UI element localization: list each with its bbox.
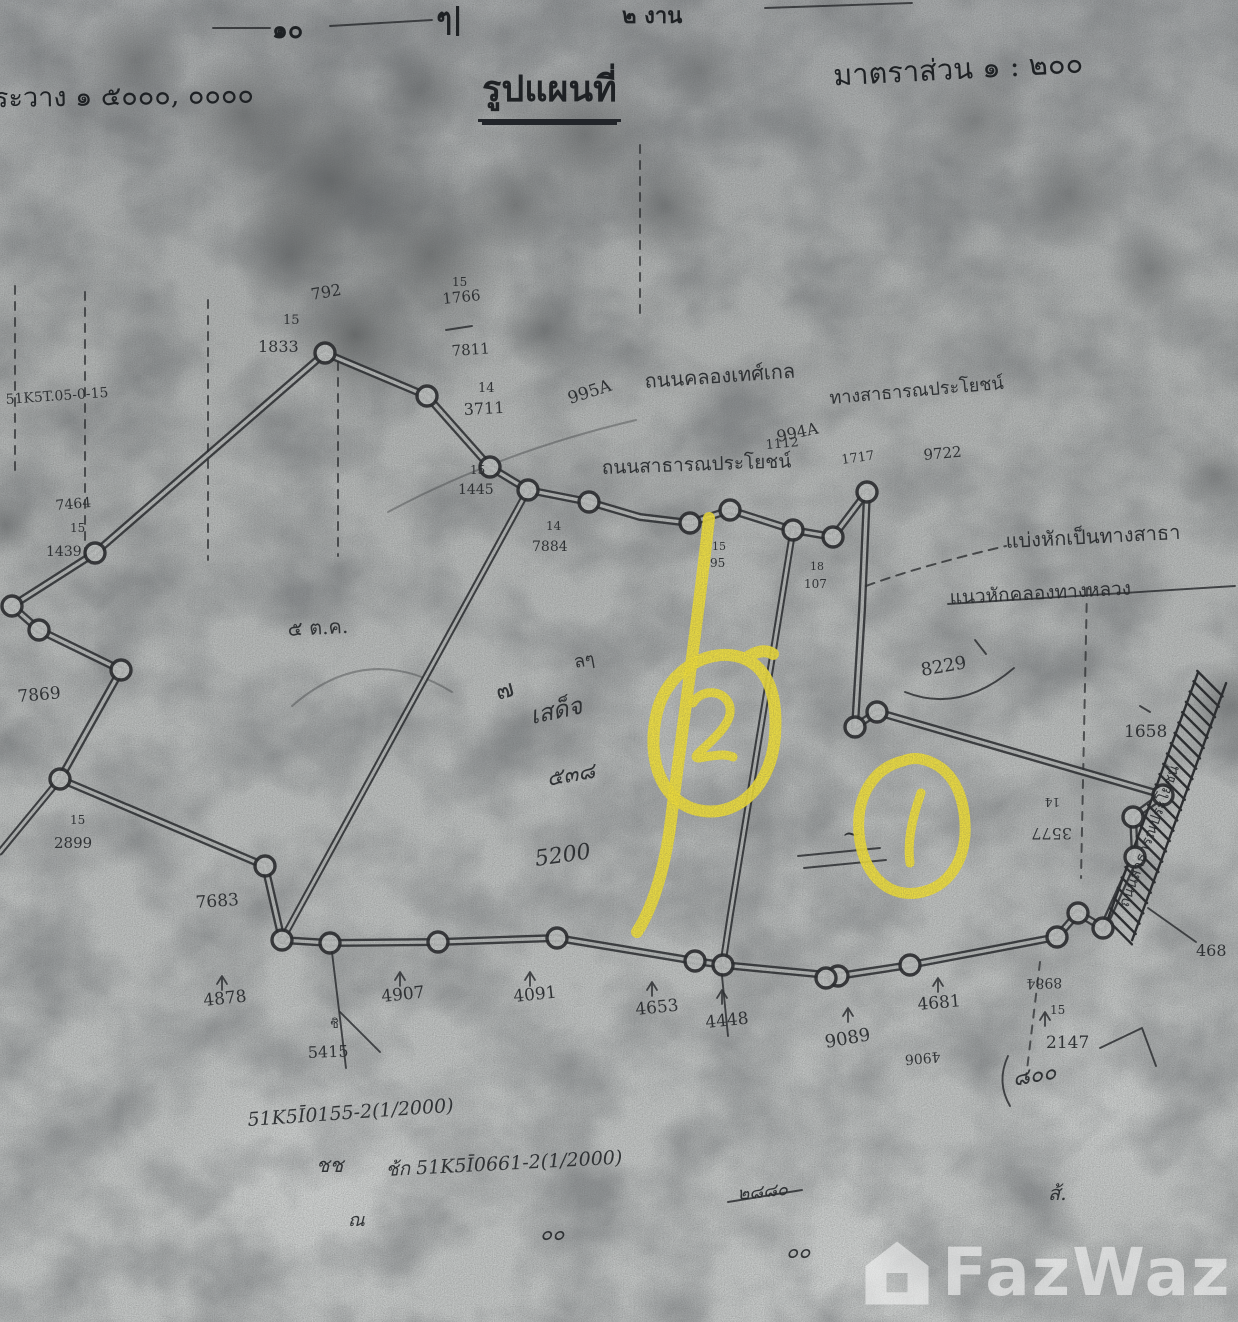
map-label: 9722 <box>923 443 963 464</box>
map-label: ลๆ <box>572 649 596 673</box>
pen-line <box>330 20 432 26</box>
map-label: ถนนสาธารณประโยชน์ <box>601 449 791 479</box>
highlighter-annotation <box>637 518 709 932</box>
survey-vertex <box>272 930 292 950</box>
map-label: ทางสาธารณประโยชน์ <box>829 372 1005 409</box>
parcel-boundary-inner <box>0 779 60 852</box>
survey-tick-mark <box>647 982 657 996</box>
survey-vertex <box>720 500 740 520</box>
road-hatch-tick <box>1193 681 1218 706</box>
survey-vertex <box>428 932 448 952</box>
map-label: แนวหักคลองทางหลวง <box>949 578 1131 609</box>
map-label: 14 <box>546 519 562 533</box>
road-hatch-tick <box>1171 743 1196 768</box>
map-label: ช้ก 51K5Ī0661-2(1/2000) <box>385 1146 623 1181</box>
map-label: 4448 <box>704 1009 749 1033</box>
pen-line <box>446 326 472 330</box>
pen-line <box>1148 908 1196 942</box>
map-label: 51K5Ī0155-2(1/2000) <box>247 1094 455 1131</box>
map-label: 15 <box>1050 1003 1065 1017</box>
survey-vertex <box>1093 918 1113 938</box>
survey-vertex <box>1047 927 1067 947</box>
map-label: 5415 <box>307 1042 348 1062</box>
map-label: 18 <box>810 560 824 573</box>
map-label: 1445 <box>458 482 494 498</box>
survey-tick-mark <box>843 1008 853 1022</box>
map-label: เสด็จ <box>527 690 585 729</box>
map-label: 4653 <box>634 996 679 1020</box>
map-label: 15 <box>283 313 300 328</box>
survey-vertex <box>29 620 49 640</box>
survey-sheet-label: ระวาง ๑ ๕๐๐๐, ๐๐๐๐ <box>0 72 254 120</box>
road-hatch-tick <box>1197 671 1222 696</box>
map-label: ๕๓๘ <box>545 758 600 792</box>
survey-vertex <box>579 492 599 512</box>
road-hatch-tick <box>1190 692 1215 717</box>
map-label: 8984 <box>1026 974 1062 991</box>
survey-vertex <box>255 856 275 876</box>
survey-vertex <box>713 955 733 975</box>
map-label: ชิ <box>330 1017 339 1032</box>
map-label: ๗ <box>492 674 517 706</box>
map-label: 4878 <box>202 987 247 1011</box>
map-label: 1439 <box>46 544 82 560</box>
map-label: 7464 <box>55 495 92 514</box>
map-label: 792 <box>309 280 342 304</box>
map-label: 3577 <box>1031 824 1072 843</box>
map-label: ถนนคลองเทศ์เกล <box>644 359 796 393</box>
survey-tick-mark <box>933 978 943 992</box>
survey-vertex <box>50 769 70 789</box>
survey-vertex <box>417 386 437 406</box>
survey-vertex <box>1068 903 1088 923</box>
fazwaz-brand-text: FazWaz <box>942 1240 1232 1306</box>
survey-vertex <box>2 596 22 616</box>
survey-vertex <box>823 527 843 547</box>
survey-vertex <box>900 955 920 975</box>
survey-vertex <box>783 520 803 540</box>
pen-line <box>975 640 986 654</box>
map-label: 107 <box>804 577 827 591</box>
top-measure-value: ๑๐ <box>272 10 303 50</box>
map-label: ๘๐๐ <box>1011 1060 1059 1092</box>
fazwaz-house-logo-icon <box>862 1238 932 1308</box>
map-label: 14 <box>1044 795 1060 809</box>
map-label: 51K5T.05-0-15 <box>5 385 109 408</box>
map-label: 3711 <box>463 398 505 419</box>
map-label: 1766 <box>442 286 482 308</box>
map-label: 4906 <box>904 1048 941 1067</box>
map-label: 4907 <box>380 983 425 1007</box>
fazwaz-watermark: FazWaz <box>862 1238 1232 1308</box>
map-label: 7884 <box>532 539 568 555</box>
map-label: ๐๐ <box>786 1239 811 1263</box>
pen-line <box>765 3 912 8</box>
map-label: 15 <box>70 521 85 535</box>
highlighter-annotation <box>693 693 733 758</box>
map-label: 7683 <box>195 890 240 913</box>
parcel-boundary-inner <box>282 490 528 940</box>
survey-vertex <box>857 482 877 502</box>
map-label: 4681 <box>917 991 962 1015</box>
map-label: 1833 <box>258 337 299 356</box>
survey-vertex <box>111 660 131 680</box>
survey-vertex <box>685 951 705 971</box>
survey-vertex <box>845 717 865 737</box>
survey-vertex <box>320 933 340 953</box>
map-label: 95 <box>710 556 725 570</box>
survey-map-svg: 7921518331517667811143711995A994Aถนนคลอง… <box>0 0 1238 1322</box>
survey-vertex <box>867 702 887 722</box>
map-label: 1658 <box>1124 722 1167 742</box>
dashed-grid-line <box>1081 588 1087 878</box>
map-label: 5200 <box>533 839 592 872</box>
survey-vertex <box>315 343 335 363</box>
map-label: 468 <box>1196 941 1227 960</box>
pen-line <box>1100 1028 1156 1066</box>
map-label: ๒๘๘๐ <box>736 1179 790 1205</box>
road-hatch-tick <box>1175 733 1200 758</box>
map-label: ๕ ต.ค. <box>287 614 349 641</box>
survey-vertex <box>518 480 538 500</box>
map-label: 7811 <box>451 339 490 360</box>
road-hatch-tick <box>1182 712 1207 737</box>
survey-vertex <box>547 928 567 948</box>
map-label: 7869 <box>17 683 62 707</box>
road-hatch-tick <box>1186 702 1211 727</box>
pen-line <box>1140 706 1150 712</box>
road-hatch-tick <box>1178 723 1203 748</box>
dashed-leader-line <box>866 546 1006 586</box>
highlighter-annotation <box>909 793 921 863</box>
pen-line <box>1002 1056 1010 1106</box>
parcel-boundary-inner <box>723 530 793 963</box>
survey-vertex <box>1123 807 1143 827</box>
survey-tick-mark <box>1040 1012 1050 1026</box>
survey-vertex <box>680 513 700 533</box>
map-label: 14 <box>478 381 495 396</box>
map-label: แบ่งหักเป็นทางสาธา <box>1005 519 1181 553</box>
top-measure-mark: ๆ| <box>436 0 463 43</box>
map-label: 2899 <box>54 834 92 852</box>
map-label: 8229 <box>919 652 968 681</box>
page-title: รูปแผนที่ <box>478 60 621 122</box>
survey-vertex <box>85 543 105 563</box>
map-label: 4091 <box>512 983 557 1007</box>
map-label: 995A <box>565 376 614 409</box>
scanned-survey-document: 7921518331517667811143711995A994Aถนนคลอง… <box>0 0 1238 1322</box>
map-label: ส้. <box>1048 1181 1067 1205</box>
map-label: ชช <box>316 1153 346 1177</box>
map-label: 15 <box>470 463 485 477</box>
map-label: 15 <box>70 813 85 827</box>
map-label: ณ <box>348 1210 365 1231</box>
survey-vertex <box>816 968 836 988</box>
top-measure-unit: ๒ งาน <box>622 0 682 33</box>
map-label: 1717 <box>840 449 875 468</box>
map-label: 9089 <box>823 1024 872 1053</box>
map-label: 2147 <box>1046 1033 1089 1053</box>
map-label: 15 <box>712 540 726 553</box>
map-label: ๐๐ <box>540 1221 565 1245</box>
